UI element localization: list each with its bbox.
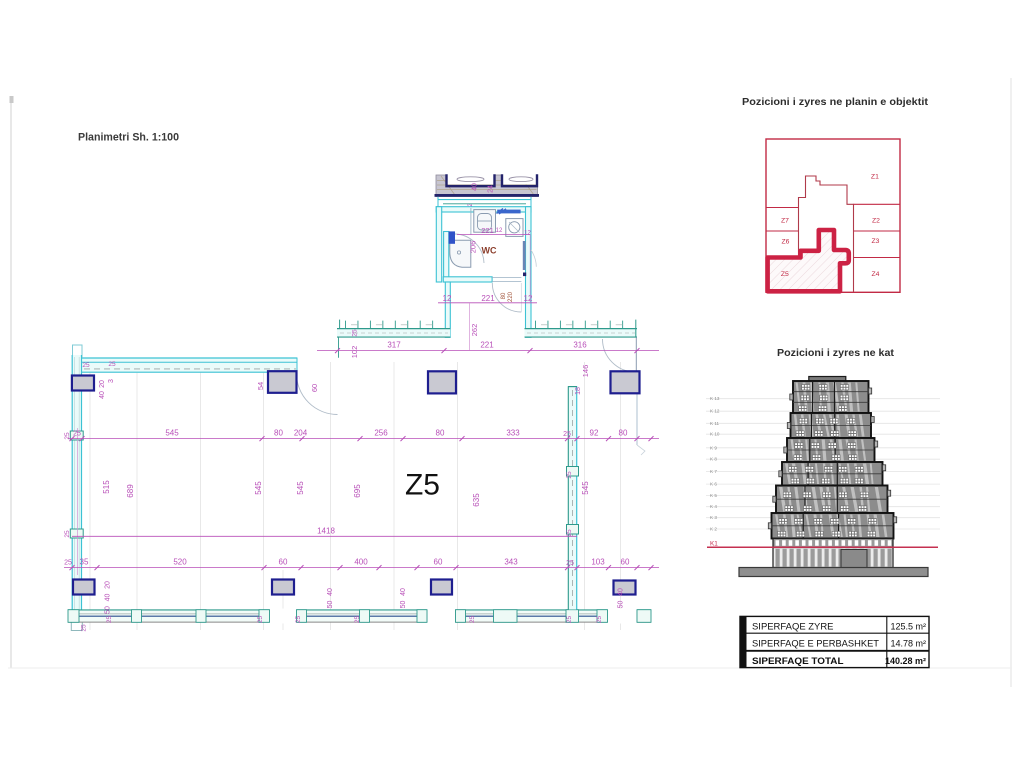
svg-text:SIPERFAQE TOTAL: SIPERFAQE TOTAL bbox=[752, 656, 844, 667]
svg-text:25: 25 bbox=[81, 624, 88, 632]
svg-text:50: 50 bbox=[618, 601, 625, 609]
svg-text:25: 25 bbox=[64, 530, 71, 538]
svg-text:316: 316 bbox=[573, 341, 587, 350]
svg-text:12: 12 bbox=[443, 294, 452, 303]
svg-text:80: 80 bbox=[619, 429, 628, 438]
svg-text:K 2: K 2 bbox=[710, 527, 717, 532]
svg-text:125.5 m²: 125.5 m² bbox=[890, 621, 926, 631]
svg-text:SIPERFAQE ZYRE: SIPERFAQE ZYRE bbox=[752, 621, 834, 632]
svg-text:262: 262 bbox=[470, 324, 479, 337]
svg-text:25: 25 bbox=[73, 431, 81, 438]
svg-text:50: 50 bbox=[327, 601, 334, 609]
svg-text:545: 545 bbox=[254, 481, 263, 495]
svg-text:54: 54 bbox=[256, 382, 265, 390]
svg-text:204: 204 bbox=[294, 429, 308, 438]
svg-text:689: 689 bbox=[126, 484, 135, 498]
svg-text:1418: 1418 bbox=[317, 527, 335, 536]
svg-text:92: 92 bbox=[590, 429, 599, 438]
svg-text:25: 25 bbox=[596, 616, 603, 624]
svg-text:K 4: K 4 bbox=[710, 504, 717, 509]
svg-text:K 11: K 11 bbox=[710, 421, 720, 426]
svg-text:545: 545 bbox=[165, 429, 179, 438]
svg-text:80: 80 bbox=[436, 429, 445, 438]
svg-text:40: 40 bbox=[99, 391, 106, 399]
svg-text:SIPERFAQE E PERBASHKET: SIPERFAQE E PERBASHKET bbox=[752, 639, 879, 650]
svg-text:Planimetri Sh. 1:100: Planimetri Sh. 1:100 bbox=[78, 132, 179, 144]
svg-text:317: 317 bbox=[387, 341, 401, 350]
svg-text:400: 400 bbox=[354, 558, 368, 567]
svg-text:25: 25 bbox=[566, 560, 574, 567]
svg-text:K 7: K 7 bbox=[710, 469, 717, 474]
svg-text:520: 520 bbox=[173, 558, 187, 567]
svg-text:K 3: K 3 bbox=[710, 515, 717, 520]
svg-text:35: 35 bbox=[80, 558, 89, 567]
svg-text:Z2: Z2 bbox=[872, 217, 880, 224]
svg-text:343: 343 bbox=[504, 558, 518, 567]
svg-text:635: 635 bbox=[472, 493, 481, 507]
svg-text:Z1: Z1 bbox=[871, 173, 879, 180]
svg-text:K 13: K 13 bbox=[710, 396, 720, 401]
svg-text:140.28 m²: 140.28 m² bbox=[885, 656, 926, 666]
svg-text:20: 20 bbox=[99, 380, 106, 388]
svg-text:40: 40 bbox=[400, 588, 407, 596]
svg-text:40: 40 bbox=[327, 588, 334, 596]
svg-text:Z5: Z5 bbox=[405, 469, 440, 502]
svg-text:Z4: Z4 bbox=[872, 271, 880, 278]
svg-text:20: 20 bbox=[105, 581, 112, 589]
svg-text:25: 25 bbox=[469, 616, 476, 624]
svg-text:60: 60 bbox=[279, 558, 288, 567]
svg-text:K 10: K 10 bbox=[710, 432, 720, 437]
svg-text:50: 50 bbox=[400, 601, 407, 609]
svg-text:18: 18 bbox=[575, 387, 582, 395]
svg-text:Z6: Z6 bbox=[782, 239, 790, 246]
svg-text:545: 545 bbox=[581, 481, 590, 495]
svg-text:60: 60 bbox=[434, 558, 443, 567]
svg-text:Z5: Z5 bbox=[781, 271, 789, 278]
svg-text:12: 12 bbox=[496, 228, 503, 234]
svg-text:60: 60 bbox=[310, 384, 319, 392]
svg-text:25: 25 bbox=[566, 471, 573, 479]
svg-text:25: 25 bbox=[108, 361, 116, 368]
svg-text:K 8: K 8 bbox=[710, 457, 717, 462]
svg-text:K1: K1 bbox=[710, 540, 718, 547]
svg-text:Z7: Z7 bbox=[781, 217, 789, 224]
svg-text:102: 102 bbox=[350, 346, 359, 359]
svg-text:220: 220 bbox=[508, 291, 514, 302]
svg-text:25: 25 bbox=[64, 432, 71, 440]
svg-text:25: 25 bbox=[566, 616, 573, 624]
svg-text:K 5: K 5 bbox=[710, 493, 717, 498]
svg-text:221: 221 bbox=[481, 226, 494, 235]
svg-text:333: 333 bbox=[506, 429, 520, 438]
svg-text:25: 25 bbox=[295, 616, 302, 624]
svg-text:25: 25 bbox=[64, 560, 72, 567]
svg-text:103: 103 bbox=[591, 558, 605, 567]
svg-text:256: 256 bbox=[374, 429, 388, 438]
svg-text:80: 80 bbox=[501, 292, 507, 299]
svg-text:221: 221 bbox=[481, 294, 495, 303]
svg-text:K 6: K 6 bbox=[710, 482, 717, 487]
svg-text:K 9: K 9 bbox=[710, 445, 717, 450]
svg-text:14.78 m²: 14.78 m² bbox=[890, 639, 926, 649]
svg-text:3: 3 bbox=[108, 379, 115, 383]
svg-text:40: 40 bbox=[472, 183, 479, 191]
svg-text:Z3: Z3 bbox=[872, 238, 880, 245]
svg-text:K 12: K 12 bbox=[710, 409, 720, 414]
svg-text:25: 25 bbox=[352, 329, 359, 337]
svg-text:50: 50 bbox=[105, 606, 112, 614]
svg-text:25: 25 bbox=[257, 616, 264, 624]
svg-text:695: 695 bbox=[353, 484, 362, 498]
svg-text:221: 221 bbox=[480, 341, 494, 350]
svg-text:25: 25 bbox=[566, 529, 573, 537]
svg-text:545: 545 bbox=[296, 481, 305, 495]
svg-text:WC: WC bbox=[482, 246, 497, 256]
svg-text:25: 25 bbox=[82, 362, 90, 369]
svg-text:80: 80 bbox=[274, 429, 283, 438]
svg-text:25: 25 bbox=[354, 616, 361, 624]
svg-text:24: 24 bbox=[488, 185, 495, 193]
svg-text:12: 12 bbox=[524, 294, 533, 303]
svg-text:25: 25 bbox=[563, 431, 571, 438]
svg-text:60: 60 bbox=[621, 558, 630, 567]
svg-text:Pozicioni i zyres ne planin e: Pozicioni i zyres ne planin e objektit bbox=[742, 96, 929, 108]
svg-text:40: 40 bbox=[105, 594, 112, 602]
svg-text:25: 25 bbox=[106, 616, 113, 624]
svg-text:Pozicioni i zyres ne kat: Pozicioni i zyres ne kat bbox=[777, 347, 894, 359]
svg-text:206: 206 bbox=[469, 241, 478, 254]
svg-text:40: 40 bbox=[618, 588, 625, 596]
svg-text:515: 515 bbox=[102, 480, 111, 494]
svg-text:146: 146 bbox=[581, 365, 590, 378]
